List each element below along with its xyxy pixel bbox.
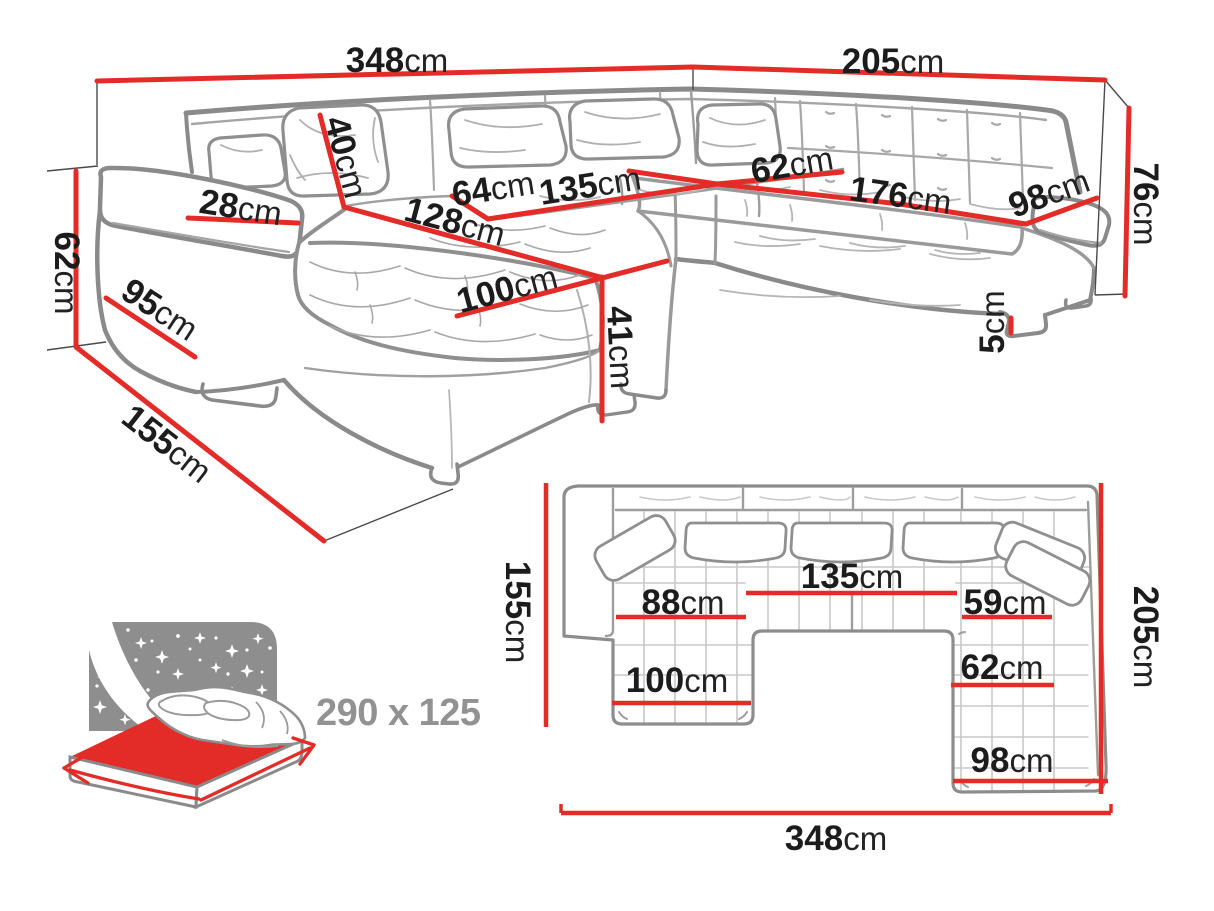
svg-text:205cm: 205cm (842, 42, 944, 81)
svg-text:135cm: 135cm (537, 158, 644, 213)
svg-text:135cm: 135cm (801, 557, 903, 596)
svg-text:76cm: 76cm (1126, 163, 1165, 246)
svg-text:205cm: 205cm (1126, 586, 1165, 688)
svg-text:348cm: 348cm (785, 819, 887, 858)
svg-text:64cm: 64cm (449, 163, 537, 214)
svg-text:290 x 125: 290 x 125 (316, 692, 481, 734)
svg-text:41cm: 41cm (599, 305, 642, 390)
svg-text:100cm: 100cm (626, 661, 728, 700)
svg-text:62cm: 62cm (961, 648, 1044, 687)
svg-text:348cm: 348cm (346, 41, 448, 80)
svg-text:62cm: 62cm (47, 232, 86, 315)
svg-text:59cm: 59cm (964, 583, 1047, 622)
svg-text:98cm: 98cm (971, 741, 1054, 780)
svg-text:88cm: 88cm (642, 583, 725, 622)
svg-text:5cm: 5cm (973, 290, 1012, 353)
svg-text:155cm: 155cm (498, 561, 537, 663)
svg-text:176cm: 176cm (847, 169, 954, 222)
svg-text:95cm: 95cm (114, 271, 205, 349)
